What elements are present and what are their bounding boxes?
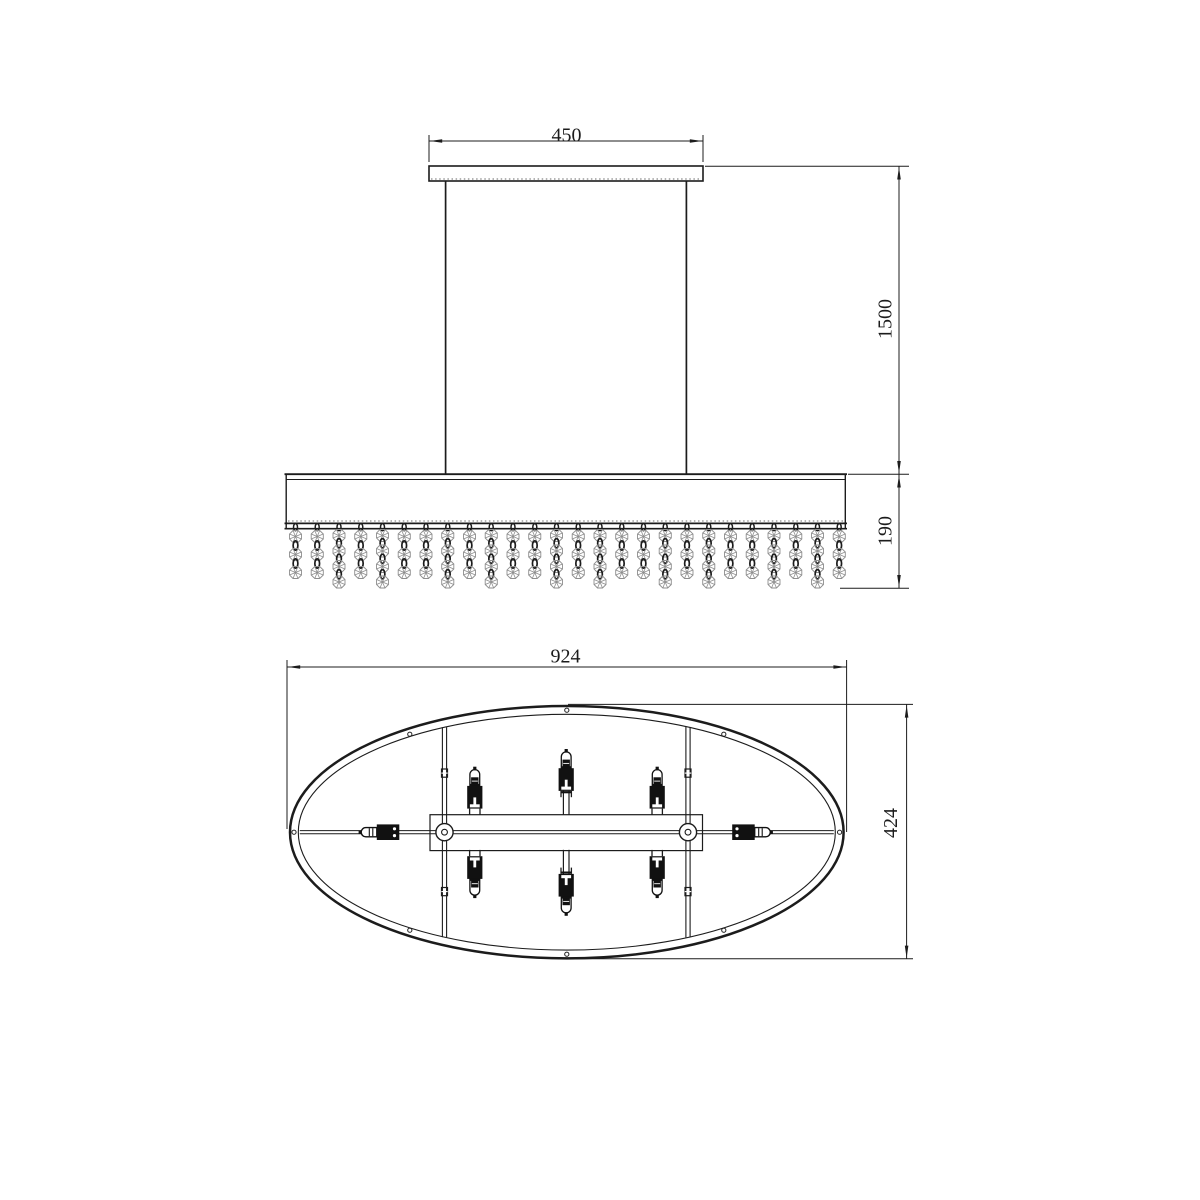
svg-text:190: 190 (875, 516, 897, 546)
svg-text:1500: 1500 (875, 299, 897, 339)
svg-text:450: 450 (552, 124, 582, 146)
svg-text:424: 424 (880, 808, 902, 838)
svg-text:924: 924 (551, 646, 581, 668)
